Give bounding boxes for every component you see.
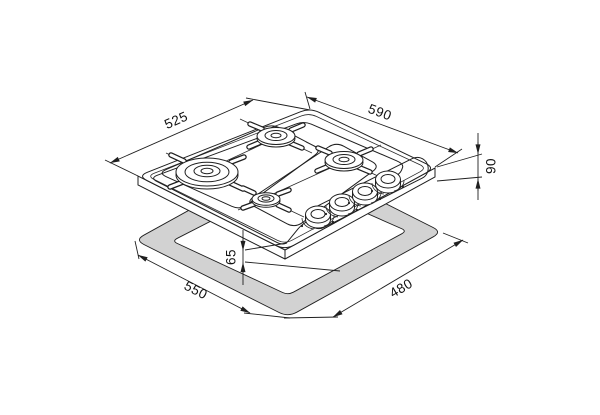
dimension-cutout-depth: 480: [284, 233, 468, 318]
dimension-cutout-depth-value: 480: [387, 276, 415, 301]
burner-medium-back: [257, 128, 295, 148]
dimension-hob-height: 90: [437, 133, 499, 200]
dimension-hob-height-value: 90: [484, 158, 499, 174]
burner-small-front: [252, 193, 280, 208]
installation-diagram: 525 590 90 65 550 480: [0, 0, 600, 415]
hob-drawing: 525 590 90 65 550 480: [0, 0, 600, 415]
dimension-recess-depth-value: 65: [224, 249, 239, 265]
burner-large-left: [176, 158, 238, 189]
dimension-hob-depth-value: 525: [162, 108, 190, 131]
dimension-cutout-width-value: 550: [182, 278, 210, 302]
burner-medium-right: [325, 152, 363, 172]
